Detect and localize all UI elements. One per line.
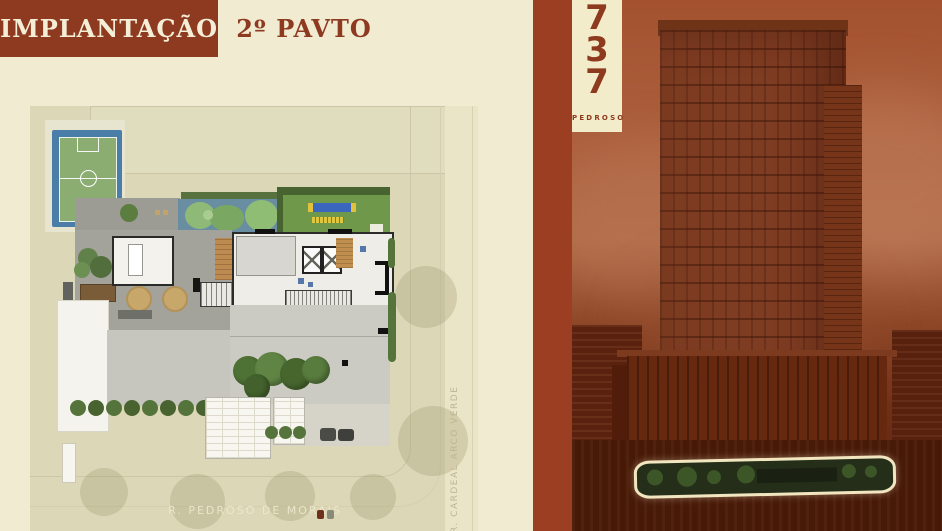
building-photo-panel: 7 3 7 PEDROSO (572, 0, 942, 531)
hedge-bush (88, 400, 104, 416)
floor-tree (707, 470, 721, 484)
section-title: IMPLANTAÇÃO (0, 14, 218, 43)
gourmet-kitchen (112, 236, 174, 286)
pool-island (210, 205, 244, 231)
plaza-tree (120, 204, 138, 222)
parked-car (338, 429, 354, 441)
round-table (126, 286, 152, 312)
street-tree (80, 468, 128, 516)
hedge-strip (388, 238, 395, 268)
plaza-planter (155, 210, 160, 215)
ramp-stairs-grid (205, 397, 271, 459)
floor-tree (865, 465, 877, 477)
street-car (317, 510, 324, 519)
column (342, 360, 348, 366)
street-car (327, 510, 334, 519)
hedge-bush (124, 400, 140, 416)
hedge-bush (106, 400, 122, 416)
planter-strip (62, 443, 76, 483)
highlighted-second-floor (634, 455, 897, 499)
hedge-bush (178, 400, 194, 416)
lawn-hedge (277, 187, 390, 195)
terrace-tree (90, 256, 112, 278)
tower-podium (627, 356, 887, 446)
interior-room (236, 236, 296, 276)
gray-deck (107, 330, 232, 406)
pool-island (245, 200, 278, 231)
floor-tree (647, 469, 663, 485)
tree-cluster (302, 356, 330, 384)
floor-label: 2º PAVTO (218, 0, 390, 57)
hedge-bush (70, 400, 86, 416)
floor-glazing (757, 467, 837, 483)
section-title-box: IMPLANTAÇÃO (0, 0, 218, 57)
logo-name: PEDROSO (572, 114, 622, 122)
parked-car (320, 428, 336, 441)
furniture (360, 246, 366, 252)
logo-digit: 7 (572, 66, 622, 98)
street-label-right: R. CARDEAL ARCO VERDE (450, 368, 460, 531)
slab-joint (230, 336, 390, 337)
court-key-top (77, 138, 99, 152)
kitchen-island (128, 244, 143, 276)
red-divider-strip (533, 0, 572, 531)
floor-tree (842, 464, 856, 478)
wood-floor (336, 238, 353, 268)
street-tree (395, 266, 457, 328)
hedge-bush (279, 426, 292, 439)
curb-line (472, 106, 473, 531)
hedge-bush (293, 426, 306, 439)
hedge-row (265, 426, 307, 439)
lawn-structure (370, 224, 383, 232)
wall-segment (193, 278, 200, 292)
terrace-tree (74, 262, 90, 278)
wall-segment (328, 229, 352, 234)
wall-segment (375, 291, 389, 295)
pool-island (203, 210, 213, 220)
lawn-bench (308, 203, 356, 212)
project-logo: 7 3 7 PEDROSO (572, 0, 622, 132)
plaza-planter (163, 210, 168, 215)
hedge-bush (265, 426, 278, 439)
hedge-bush (160, 400, 176, 416)
furniture (298, 278, 304, 284)
wall-segment (385, 265, 389, 293)
hedge-bush (142, 400, 158, 416)
bar-counter (118, 310, 152, 319)
street-tree (170, 474, 225, 529)
round-table (162, 286, 188, 312)
furniture (308, 282, 313, 287)
wall-segment (255, 229, 275, 234)
hedge-strip (388, 292, 396, 362)
wood-deck (215, 238, 233, 280)
site-plan: R. PEDROSO DE MORAIS R. CARDEAL ARCO VER… (30, 106, 478, 531)
floor-tree (737, 465, 755, 483)
court-center-circle (80, 170, 97, 187)
elevator-shaft (302, 246, 322, 274)
street-label-bottom: R. PEDROSO DE MORAIS (135, 504, 375, 517)
floor-tree (677, 467, 697, 487)
lawn-game-strip (312, 217, 344, 223)
